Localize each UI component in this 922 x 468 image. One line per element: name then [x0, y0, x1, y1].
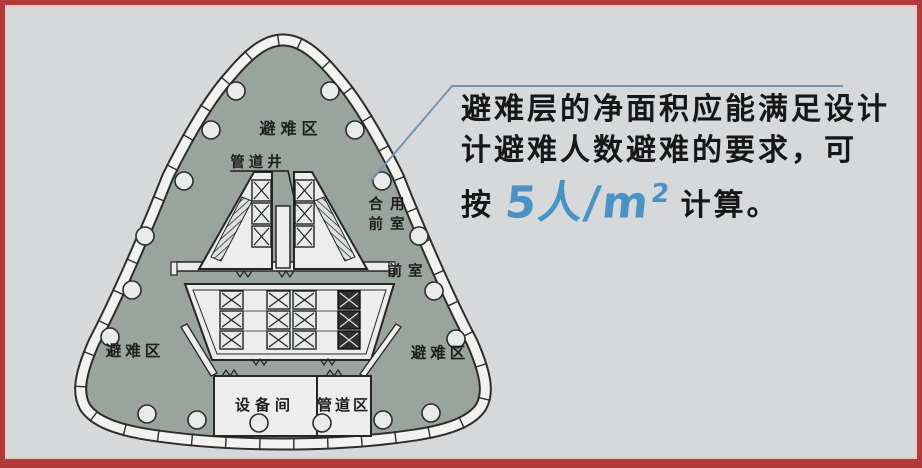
- slide-canvas: { "annotation": { "line1": "避难层的净面积应能满足设…: [0, 0, 922, 468]
- occupancy-rate-highlight: 5人/m2: [503, 172, 673, 226]
- column-icon: [374, 411, 392, 429]
- annotation-line3-suffix: 计算。: [681, 185, 780, 226]
- core-lower: [185, 284, 394, 365]
- annotation-text: 避难层的净面积应能满足设计 计避难人数避难的要求，可 按 5人/m2 计算。: [461, 89, 922, 226]
- annotation-line-2: 计避难人数避难的要求，可: [461, 130, 922, 171]
- label-shared-lobby-line1: 合用: [368, 195, 412, 213]
- label-shared-lobby-line2: 前室: [369, 215, 412, 233]
- mullion-tick: [225, 436, 226, 449]
- label-pipe-zone: 管道区: [317, 396, 371, 414]
- label-lobby: 前室: [388, 262, 429, 280]
- column-icon: [425, 282, 443, 300]
- mullion-tick: [328, 437, 329, 450]
- pipe-shaft-box: [276, 206, 290, 268]
- column-icon: [410, 227, 428, 245]
- column-icon: [422, 404, 440, 422]
- column-icon: [202, 121, 220, 139]
- column-icon: [227, 82, 245, 100]
- label-refuge-area-left: 避难区: [106, 341, 165, 360]
- column-icon: [250, 414, 268, 432]
- occupancy-rate-value: 5人/m: [503, 178, 653, 229]
- column-icon: [175, 172, 193, 190]
- annotation-line-1: 避难层的净面积应能满足设计: [461, 89, 922, 130]
- annotation-line-3: 按 5人/m2 计算。: [461, 172, 922, 226]
- column-icon: [313, 414, 331, 432]
- column-icon: [138, 405, 156, 423]
- label-refuge-area-top: 避难区: [259, 119, 322, 138]
- label-refuge-area-right: 避难区: [411, 343, 470, 362]
- mullion-tick: [74, 386, 87, 387]
- floor-plan: 避难区 管道井 合用 前室 前室 避难区 避难区 设备间 管道区: [5, 5, 917, 459]
- column-icon: [123, 281, 141, 299]
- column-icon: [188, 411, 206, 429]
- annotation-line3-prefix: 按: [461, 185, 494, 226]
- column-icon: [321, 82, 339, 100]
- column-icon: [346, 121, 364, 139]
- label-equipment-room: 设备间: [235, 396, 295, 414]
- column-icon: [136, 227, 154, 245]
- occupancy-rate-exponent: 2: [649, 179, 672, 209]
- label-pipe-shaft: 管道井: [230, 153, 286, 171]
